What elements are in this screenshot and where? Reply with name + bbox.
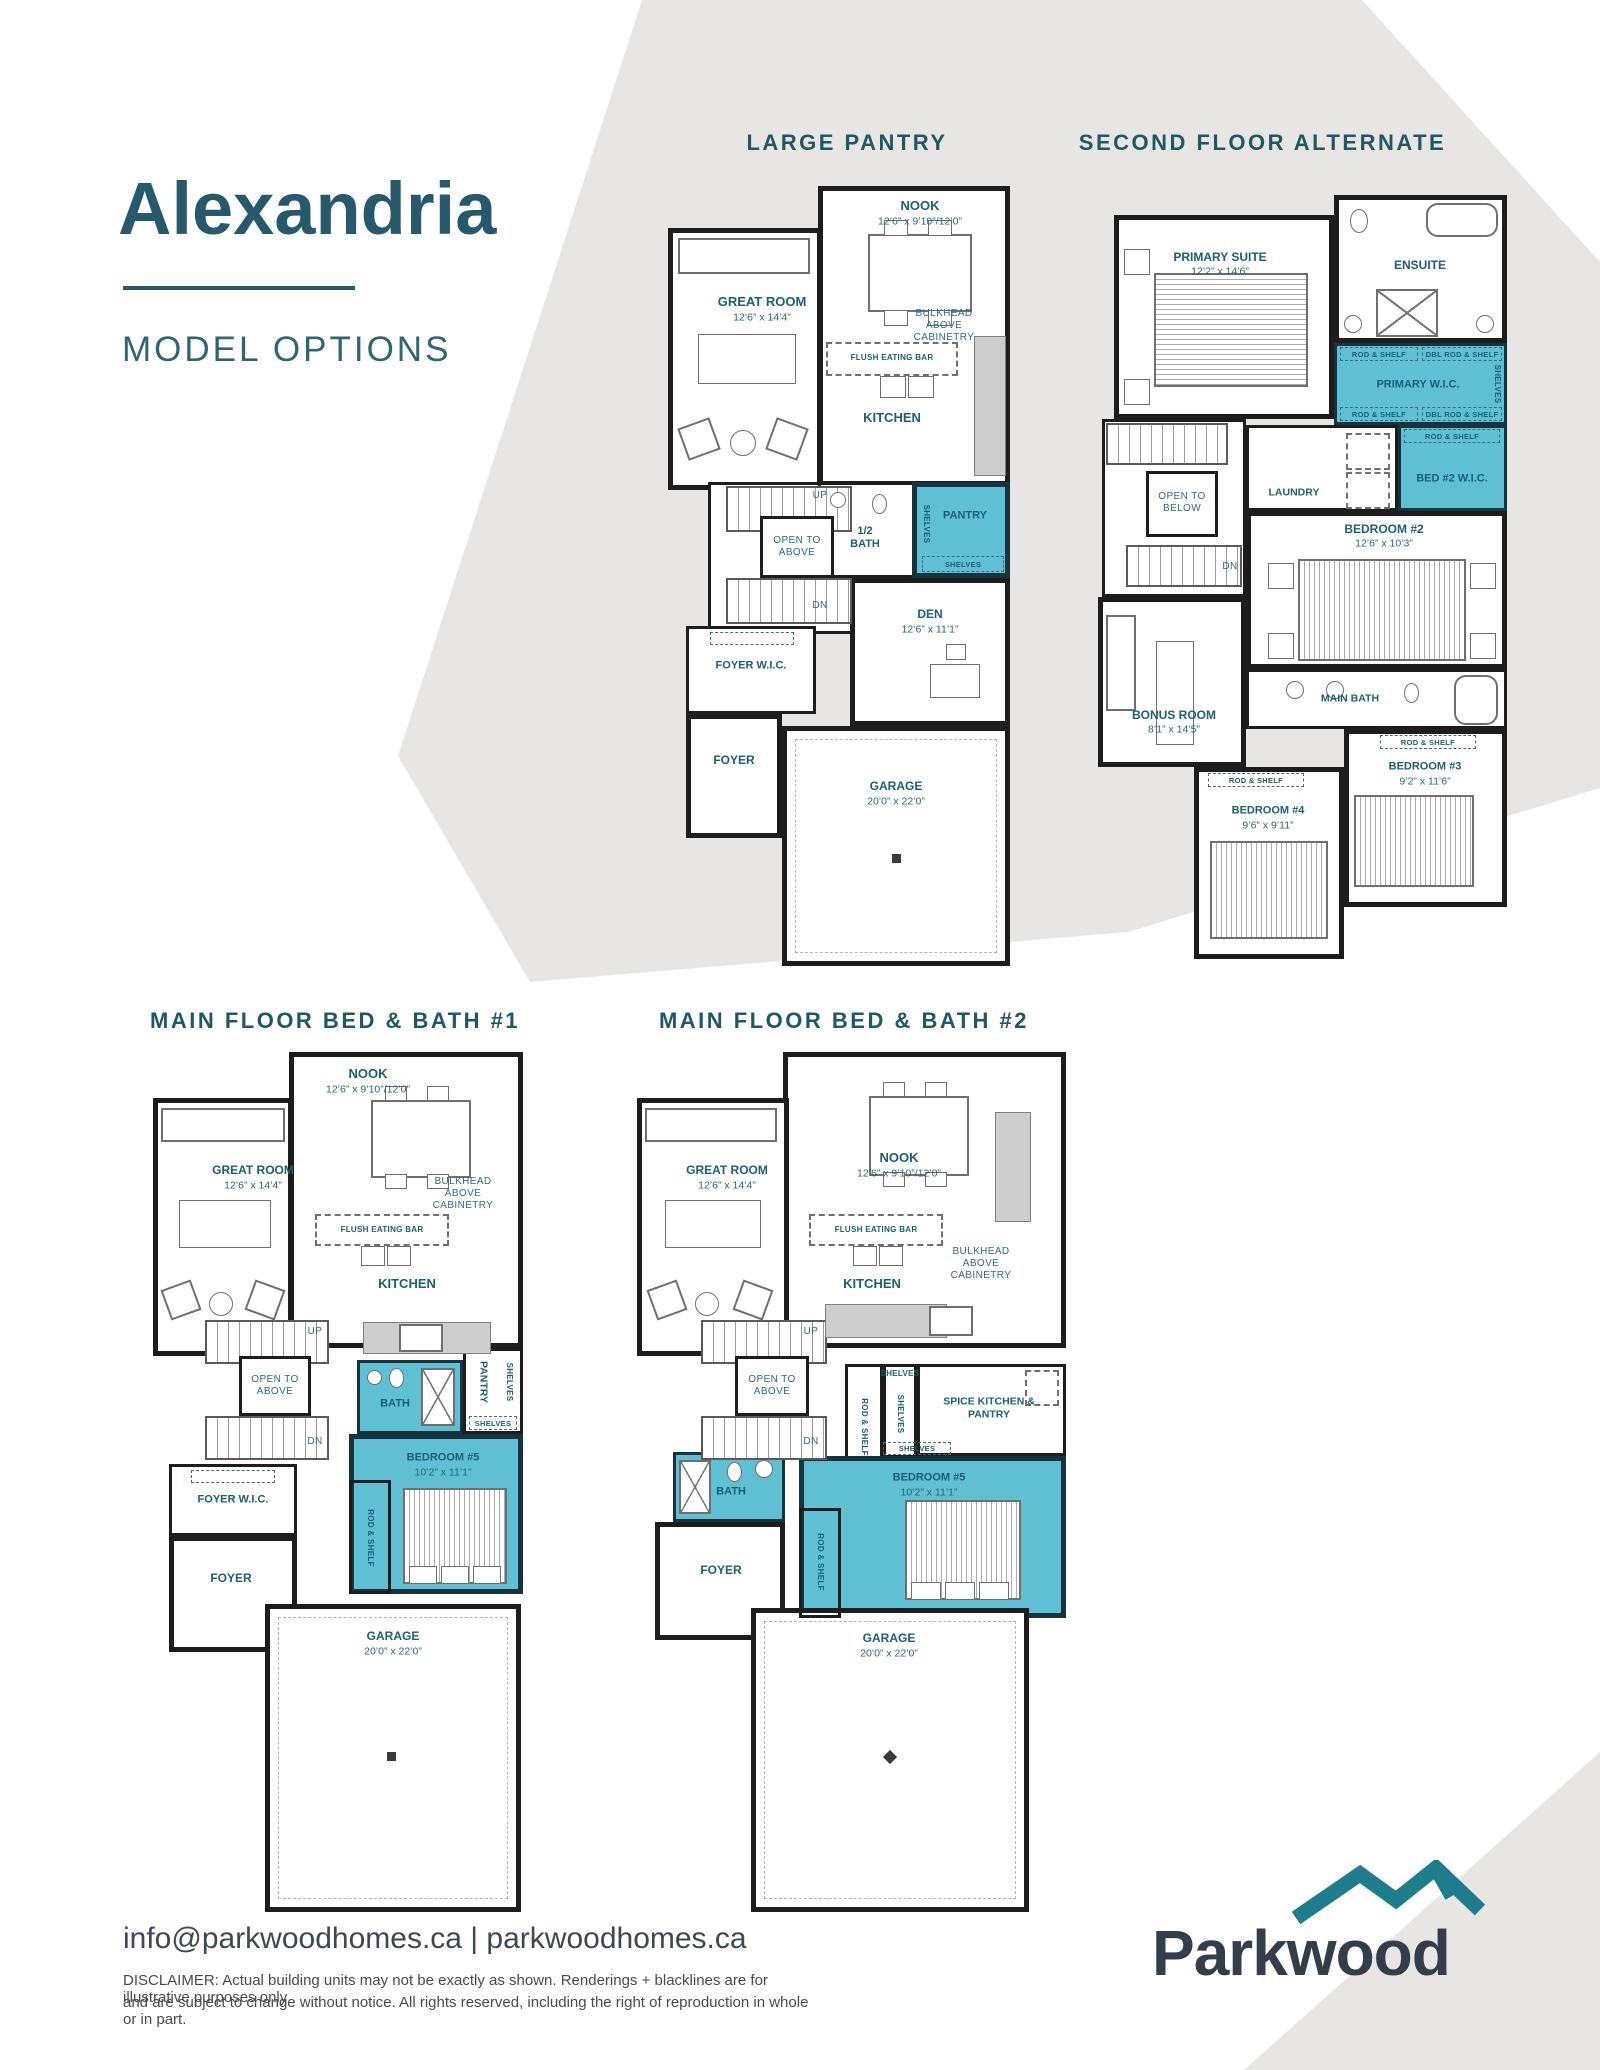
side-table: [730, 430, 756, 456]
label-bedroom4-dim: 9’6” x 9’11”: [1242, 820, 1293, 833]
label-kitchen: KITCHEN: [843, 1276, 901, 1292]
label-shelves-top: SHELVES: [881, 1369, 920, 1379]
label-bedroom5: BEDROOM #5: [893, 1471, 966, 1484]
den-desk: [930, 664, 980, 698]
nightstand: [1470, 563, 1496, 589]
shelves-label: SHELVES: [475, 1419, 512, 1428]
label-shelves-vert: SHELVES: [504, 1363, 514, 1402]
coffee-table: [665, 1200, 761, 1248]
stove: [929, 1306, 973, 1336]
sink: [755, 1460, 773, 1478]
bed: [1154, 273, 1308, 387]
room-den: [850, 578, 1010, 726]
chair: [925, 1082, 947, 1097]
washer: [1346, 433, 1390, 470]
sofa: [645, 1108, 777, 1142]
label-nook-dim: 12’6” x 9’10”/12’0”: [857, 1168, 941, 1181]
label-nook-dim: 12’6” x 9’10”/12’0”: [878, 216, 962, 229]
label-foyer: FOYER: [210, 1571, 251, 1585]
label-dn: DN: [812, 600, 827, 612]
toilet: [1404, 683, 1419, 703]
room-garage: [782, 726, 1010, 966]
label-pantry-shelves-vert: SHELVES: [921, 505, 931, 544]
dbl-rod-shelf-strip: DBL ROD & SHELF: [1422, 347, 1502, 361]
label-kitchen: KITCHEN: [863, 410, 921, 426]
page-subtitle: MODEL OPTIONS: [122, 330, 451, 370]
side-table: [209, 1292, 233, 1316]
wic-rod-strip: [710, 632, 794, 645]
label-nook-dim: 12’6” x 9’10”/12’0”: [326, 1084, 410, 1097]
label-open-above: OPEN TO ABOVE: [743, 1374, 801, 1398]
nook-table: [868, 234, 972, 312]
sink: [1476, 315, 1494, 333]
floorplan-second-floor-alternate: ROD & SHELF DBL ROD & SHELF ROD & SHELF …: [1098, 195, 1507, 968]
heading-main-floor-2: MAIN FLOOR BED & BATH #2: [628, 1008, 1060, 1034]
sofa: [161, 1108, 285, 1142]
bench-cushion: [911, 1582, 941, 1600]
bench-cushion: [409, 1566, 437, 1584]
label-spice-kitchen: SPICE KITCHEN & PANTRY: [943, 1395, 1035, 1420]
rod-shelf-label: ROD & SHELF: [1352, 410, 1406, 419]
label-primary-suite-dim: 12’2” x 14’6”: [1191, 266, 1249, 279]
shower: [1376, 289, 1438, 337]
shelves-strip: SHELVES: [883, 1442, 951, 1455]
coffee-table: [698, 334, 796, 384]
sink: [879, 1246, 903, 1266]
toilet: [389, 1368, 404, 1388]
label-bedroom5-dim: 10’2” x 11’1”: [900, 1487, 957, 1500]
dbl-rod-shelf-strip: DBL ROD & SHELF: [1422, 407, 1502, 421]
sink: [908, 376, 934, 398]
label-bath: BATH: [380, 1397, 410, 1410]
dbl-rod-shelf-label: DBL ROD & SHELF: [1426, 410, 1499, 419]
heading-main-floor-1: MAIN FLOOR BED & BATH #1: [150, 1008, 506, 1034]
label-foyer-wic: FOYER W.I.C.: [195, 1493, 271, 1506]
label-wic-shelves: SHELVES: [1492, 365, 1502, 404]
label-primary-suite: PRIMARY SUITE: [1173, 250, 1266, 264]
rod-shelf-label: ROD & SHELF: [1425, 432, 1479, 441]
label-open-above: OPEN TO ABOVE: [768, 535, 826, 559]
bench-cushion: [473, 1566, 501, 1584]
label-flush-bar: FLUSH EATING BAR: [341, 1225, 424, 1235]
label-nook: NOOK: [901, 198, 940, 214]
shelves-label: SHELVES: [945, 560, 982, 569]
label-open-above: OPEN TO ABOVE: [247, 1374, 303, 1398]
rod-shelf-strip: ROD & SHELF: [1380, 735, 1476, 749]
label-great-room: GREAT ROOM: [212, 1163, 294, 1177]
heading-second-floor-alternate: SECOND FLOOR ALTERNATE: [1035, 130, 1490, 156]
bonus-sofa: [1106, 615, 1136, 711]
kitchen-counter: [974, 336, 1006, 476]
label-rod-shelf-vert: ROD & SHELF: [859, 1398, 869, 1456]
pantry-shelves-strip: SHELVES: [922, 556, 1004, 572]
label-bedroom2-dim: 12’6” x 10’3”: [1355, 538, 1413, 551]
stove: [399, 1324, 443, 1352]
nightstand: [1268, 563, 1294, 589]
label-bath: BATH: [716, 1485, 746, 1498]
heading-large-pantry: LARGE PANTRY: [668, 130, 1026, 156]
label-den: DEN: [917, 607, 942, 621]
label-dn: DN: [307, 1436, 322, 1448]
sink: [853, 1246, 877, 1266]
label-bedroom5: BEDROOM #5: [407, 1451, 480, 1464]
rod-shelf-strip: ROD & SHELF: [1340, 407, 1418, 421]
label-up: UP: [804, 1326, 819, 1338]
label-half-bath: 1/2 BATH: [842, 525, 888, 551]
label-great-room-dim: 12’6” x 14’4”: [733, 312, 791, 325]
bench-cushion: [979, 1582, 1009, 1600]
label-garage-dim: 20’0” x 22’0”: [364, 1646, 422, 1659]
den-chair: [946, 644, 966, 660]
label-garage-dim: 20’0” x 22’0”: [867, 796, 925, 809]
nightstand: [1124, 249, 1150, 275]
garage-floor-drain: [892, 854, 901, 863]
nightstand: [1470, 633, 1496, 659]
nook-table: [371, 1100, 471, 1178]
bed: [1298, 559, 1466, 661]
label-shelves-vert: SHELVES: [895, 1395, 905, 1434]
stairs: [1106, 423, 1228, 465]
label-bonus-room-dim: 8’1” x 14’5”: [1148, 724, 1200, 737]
label-bedroom2: BEDROOM #2: [1344, 522, 1423, 536]
bathtub: [1426, 203, 1498, 237]
label-garage-dim: 20’0” x 22’0”: [860, 1648, 918, 1661]
label-bedroom5-dim: 10’2” x 11’1”: [414, 1467, 471, 1480]
disclaimer-line-2: and are subject to change without notice…: [123, 1994, 823, 2028]
bed: [1210, 841, 1328, 939]
sink: [367, 1370, 382, 1385]
rod-shelf-label: ROD & SHELF: [1352, 350, 1406, 359]
label-garage: GARAGE: [367, 1629, 420, 1643]
sink: [361, 1246, 385, 1266]
label-bedroom3: BEDROOM #3: [1389, 760, 1462, 773]
label-garage: GARAGE: [870, 779, 923, 793]
label-main-bath: MAIN BATH: [1318, 693, 1382, 706]
bench-cushion: [945, 1582, 975, 1600]
label-pantry: PANTRY: [943, 509, 987, 522]
label-dn: DN: [803, 1436, 818, 1448]
rod-shelf-label: ROD & SHELF: [1229, 776, 1283, 785]
label-rod-shelf-vert: ROD & SHELF: [365, 1509, 375, 1567]
sink: [1344, 315, 1362, 333]
contact-line: info@parkwoodhomes.ca | parkwoodhomes.ca: [123, 1922, 747, 1956]
label-flush-bar: FLUSH EATING BAR: [851, 353, 934, 363]
label-flush-bar: FLUSH EATING BAR: [835, 1225, 918, 1235]
label-ensuite: ENSUITE: [1394, 258, 1446, 272]
label-open-below: OPEN TO BELOW: [1154, 491, 1210, 515]
label-bonus-room: BONUS ROOM: [1132, 708, 1216, 722]
shelves-label: SHELVES: [899, 1444, 936, 1453]
label-laundry: LAUNDRY: [1269, 487, 1320, 500]
label-bulkhead: BULKHEAD ABOVE CABINETRY: [938, 1246, 1024, 1282]
chair: [883, 1082, 905, 1097]
label-foyer: FOYER: [700, 1563, 741, 1577]
label-great-room: GREAT ROOM: [686, 1163, 768, 1177]
room-foyer: [686, 714, 782, 838]
tall-cabinetry: [995, 1112, 1031, 1222]
label-bedroom3-dim: 9’2” x 11’6”: [1399, 776, 1450, 789]
rod-shelf-strip: ROD & SHELF: [1208, 773, 1304, 787]
label-den-dim: 12’6” x 11’1”: [901, 624, 958, 637]
rod-shelf-strip: ROD & SHELF: [1404, 429, 1500, 443]
sink: [830, 492, 846, 508]
toilet: [1350, 209, 1368, 233]
bench-cushion: [441, 1566, 469, 1584]
coffee-table: [179, 1200, 271, 1248]
nightstand: [1268, 633, 1294, 659]
label-kitchen: KITCHEN: [378, 1276, 436, 1292]
wic-rod-strip: [191, 1470, 275, 1483]
label-garage: GARAGE: [863, 1631, 916, 1645]
label-pantry: PANTRY: [477, 1361, 490, 1403]
toilet: [727, 1462, 742, 1482]
rod-shelf-strip: ROD & SHELF: [1340, 347, 1418, 361]
stairs-down: [726, 578, 852, 624]
floorplan-main-floor-1: SHELVES NOOK 12’6” x 9’10”/12’0” GREAT R…: [153, 1052, 523, 1916]
sofa: [678, 238, 810, 274]
title-underline: [123, 286, 355, 290]
sink: [1286, 681, 1304, 699]
parkwood-wordmark: Parkwood: [1152, 1916, 1450, 1990]
floorplan-main-floor-2: SHELVES NOOK 12’6” x 9’10”/12’0” GREAT R…: [637, 1052, 1066, 1916]
label-bulkhead: BULKHEAD ABOVE CABINETRY: [420, 1176, 506, 1212]
label-rod-shelf-closet: ROD & SHELF: [815, 1533, 825, 1591]
bathtub: [1454, 675, 1498, 725]
label-great-room: GREAT ROOM: [718, 294, 807, 310]
rod-shelf-label: ROD & SHELF: [1401, 738, 1455, 747]
side-table: [695, 1292, 719, 1316]
label-nook: NOOK: [880, 1150, 919, 1166]
shower: [421, 1368, 455, 1426]
label-great-room-dim: 12’6” x 14’4”: [224, 1180, 282, 1193]
shelves-strip: SHELVES: [469, 1416, 517, 1430]
label-foyer-wic: FOYER W.I.C.: [713, 659, 789, 672]
garage-slab-outline: [795, 739, 997, 953]
sink: [387, 1246, 411, 1266]
floorplan-large-pantry: SHELVES NOOK 12’6” x 9’10”/12’0” GREAT R…: [668, 186, 1026, 968]
label-bulkhead: BULKHEAD ABOVE CABINETRY: [899, 308, 989, 344]
dbl-rod-shelf-label: DBL ROD & SHELF: [1426, 350, 1499, 359]
label-up: UP: [813, 490, 828, 502]
nightstand: [1124, 379, 1150, 405]
label-great-room-dim: 12’6” x 14’4”: [698, 1180, 756, 1193]
label-primary-wic: PRIMARY W.I.C.: [1368, 378, 1468, 391]
sink: [880, 376, 906, 398]
chair: [385, 1174, 407, 1189]
dryer: [1346, 472, 1390, 509]
toilet: [872, 494, 887, 514]
label-bed2-wic: BED #2 W.I.C.: [1413, 472, 1491, 485]
bed: [1354, 795, 1474, 887]
chair: [427, 1086, 449, 1101]
garage-floor-drain: [387, 1752, 396, 1761]
label-dn: DN: [1222, 561, 1237, 573]
label-foyer: FOYER: [713, 753, 754, 767]
page-title: Alexandria: [118, 166, 496, 251]
label-up: UP: [308, 1326, 323, 1338]
shower: [679, 1460, 711, 1514]
label-nook: NOOK: [349, 1066, 388, 1082]
brochure-page: Alexandria MODEL OPTIONS LARGE PANTRY SE…: [0, 0, 1600, 2070]
label-bedroom4: BEDROOM #4: [1232, 804, 1305, 817]
